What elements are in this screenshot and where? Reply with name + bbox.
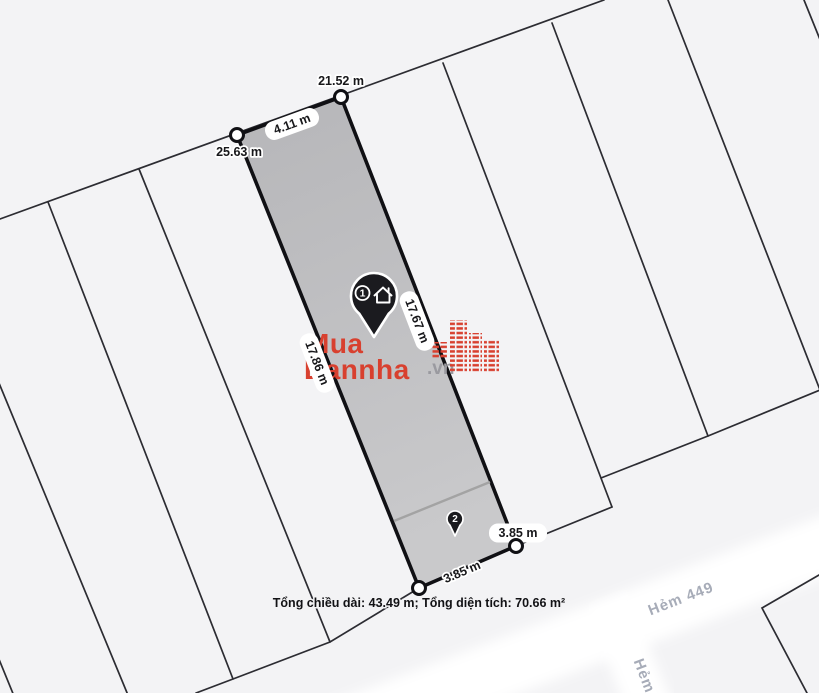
label-left-vertex: 25.63 m bbox=[216, 145, 262, 159]
vertex-top[interactable] bbox=[335, 91, 348, 104]
pin1-number: 1 bbox=[360, 288, 366, 300]
vertex-bottom-right[interactable] bbox=[510, 540, 523, 553]
svg-text:3.85 m: 3.85 m bbox=[499, 526, 538, 540]
vertex-left[interactable] bbox=[231, 129, 244, 142]
cadastral-map: Hẻm 449 Hẻm Mua Bannha .vn bbox=[0, 0, 819, 693]
label-top-vertex: 21.52 m bbox=[318, 74, 364, 88]
vertex-bottom-left[interactable] bbox=[413, 582, 426, 595]
map-canvas: Hẻm 449 Hẻm Mua Bannha .vn bbox=[0, 0, 819, 693]
pin2-number: 2 bbox=[452, 514, 458, 525]
totals-text: Tổng chiều dài: 43.49 m; Tổng diện tích:… bbox=[273, 596, 565, 610]
